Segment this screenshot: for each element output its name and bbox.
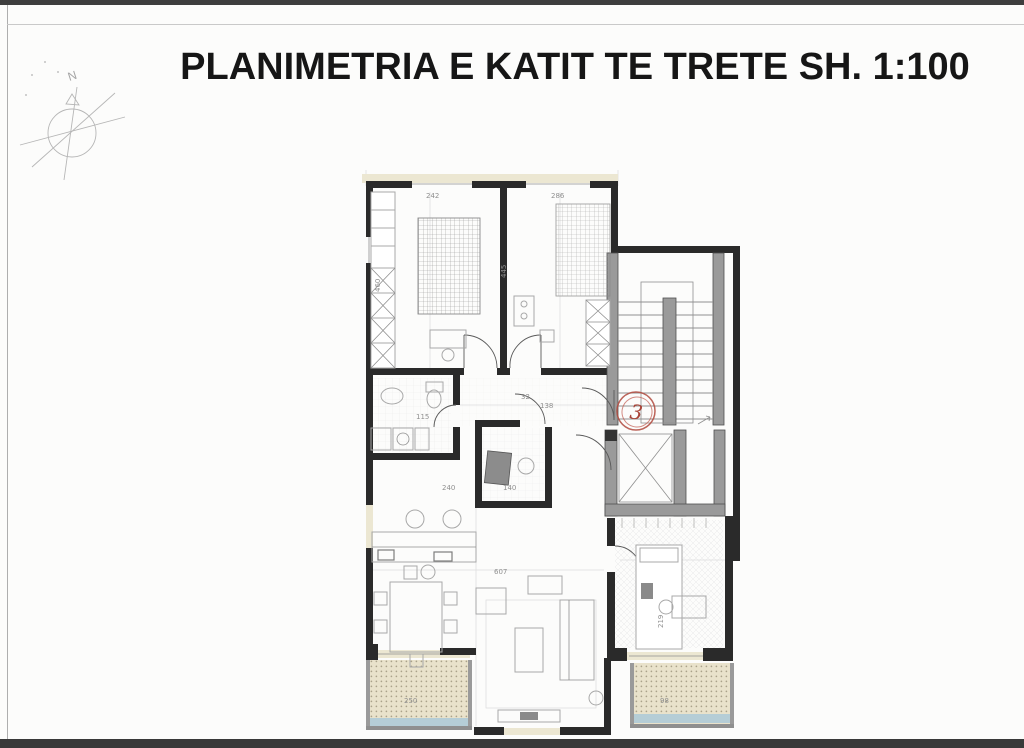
kitchen-counter — [372, 510, 476, 562]
svg-text:219: 219 — [657, 615, 665, 628]
svg-text:286: 286 — [551, 192, 565, 200]
svg-text:242: 242 — [426, 192, 439, 200]
floor-number: 3 — [628, 399, 644, 425]
svg-text:138: 138 — [540, 402, 553, 410]
balcony-left — [366, 660, 472, 730]
svg-text:240: 240 — [442, 484, 455, 492]
svg-text:115: 115 — [416, 413, 429, 421]
svg-text:140: 140 — [503, 484, 516, 492]
svg-text:607: 607 — [494, 568, 507, 576]
sofa-area — [476, 576, 603, 722]
svg-text:98: 98 — [660, 697, 669, 705]
drawing-sheet: PLANIMETRIA E KATIT TE TRETE SH. 1:100 — [0, 0, 1024, 748]
svg-text:32: 32 — [521, 393, 530, 401]
elevator-shaft — [605, 430, 725, 528]
svg-text:445: 445 — [500, 265, 508, 278]
bedroom-top-right — [514, 204, 610, 366]
wardrobe-right — [586, 300, 610, 366]
compass-north-label: N — [66, 68, 79, 84]
svg-text:460: 460 — [374, 279, 382, 292]
svg-text:250: 250 — [404, 697, 417, 705]
floor-number-marker: 3 — [617, 392, 655, 430]
floor-plan-canvas: N — [0, 0, 1024, 748]
north-compass: N — [20, 61, 125, 180]
balcony-right — [630, 663, 734, 728]
elevator-car — [619, 434, 672, 502]
